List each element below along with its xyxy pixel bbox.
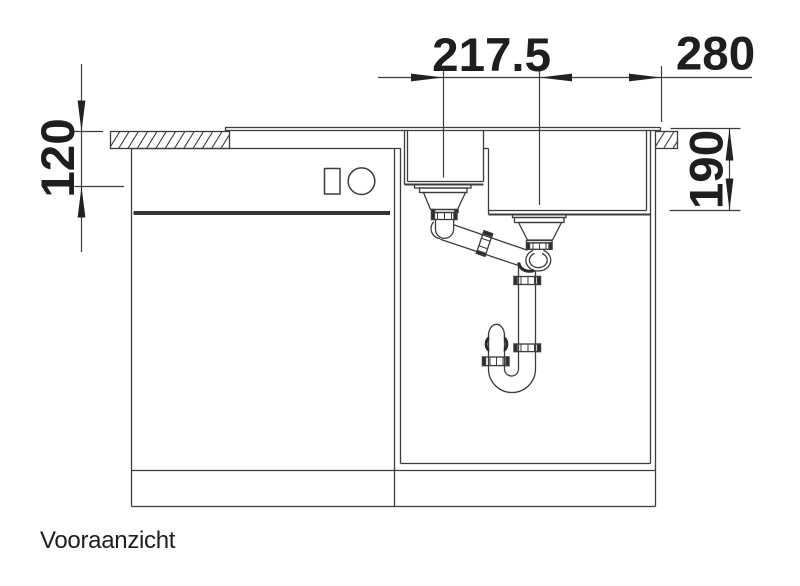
svg-text:Vooraanzicht: Vooraanzicht (40, 527, 176, 554)
svg-text:190: 190 (681, 130, 734, 209)
svg-text:217.5: 217.5 (432, 29, 551, 82)
svg-text:280: 280 (676, 28, 755, 81)
svg-text:120: 120 (32, 118, 85, 197)
